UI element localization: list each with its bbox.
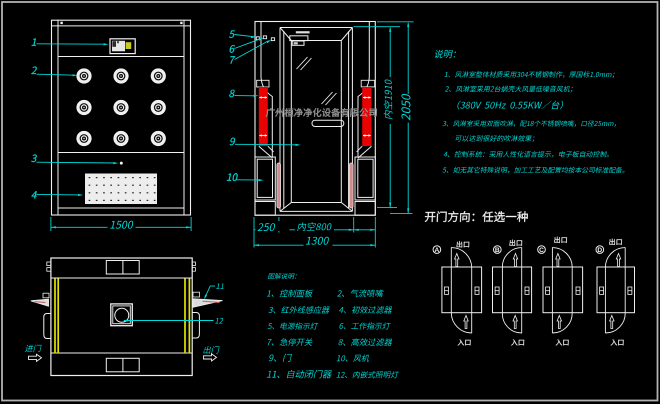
svg-text:C: C (539, 247, 544, 254)
svg-text:B: B (495, 247, 500, 254)
svg-text:D: D (597, 247, 602, 254)
svg-text:A: A (435, 247, 440, 254)
